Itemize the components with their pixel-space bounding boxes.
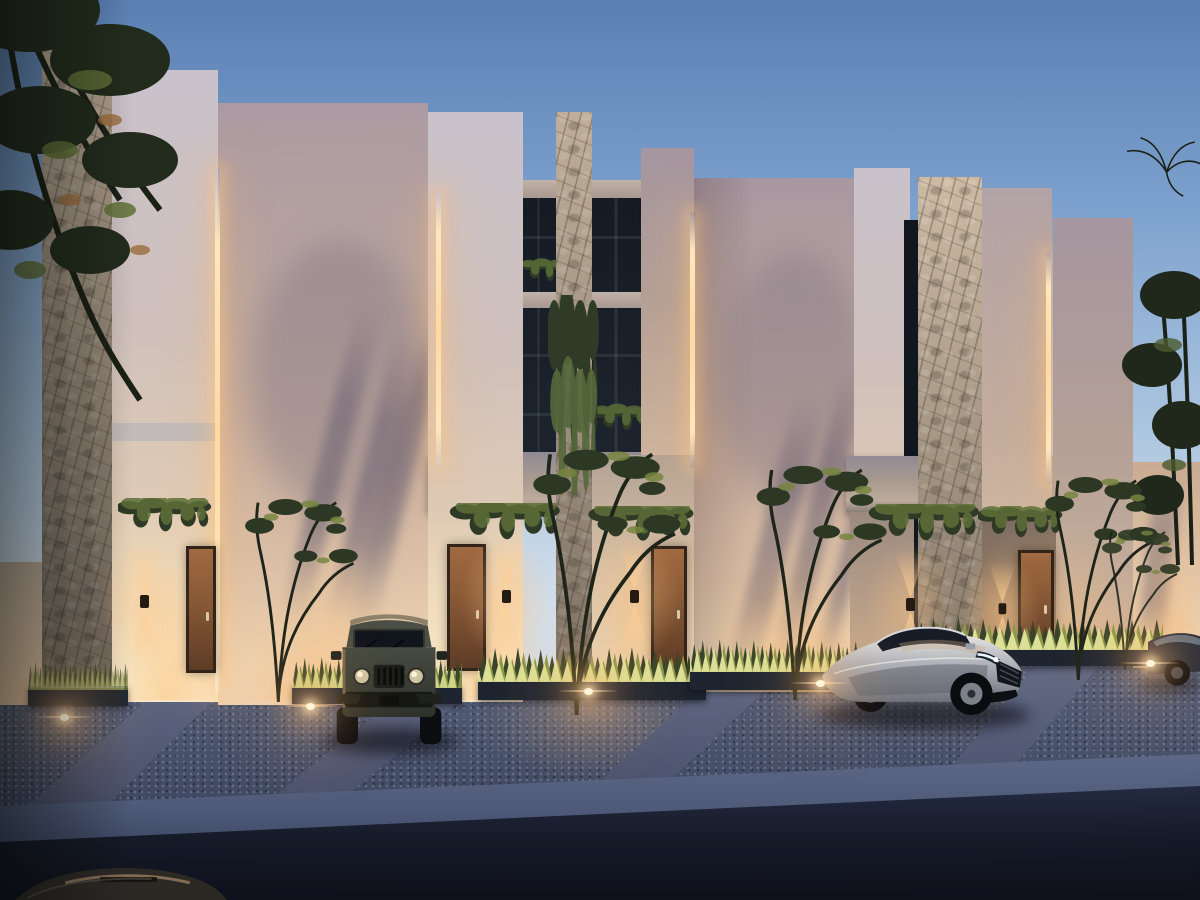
grasses [28,658,128,690]
entry-door-1 [186,546,216,673]
suv-jeep [330,593,448,748]
facade-slab-3 [641,148,694,455]
palm-fronds [1125,106,1200,228]
car-partial-corner [8,856,228,900]
dusk-townhouse-render [0,0,1200,900]
door-handle [206,612,209,621]
shade-line [112,423,218,441]
yard-tree [520,415,690,715]
tree-silhouette-topleft [0,0,310,410]
sedan-silver [818,598,1030,726]
car-partial-right [1148,618,1200,690]
wall-sconce-1 [122,545,166,661]
led-strip-2 [436,192,441,468]
led-strip-3 [690,212,695,468]
hanging-ivy [118,498,213,540]
